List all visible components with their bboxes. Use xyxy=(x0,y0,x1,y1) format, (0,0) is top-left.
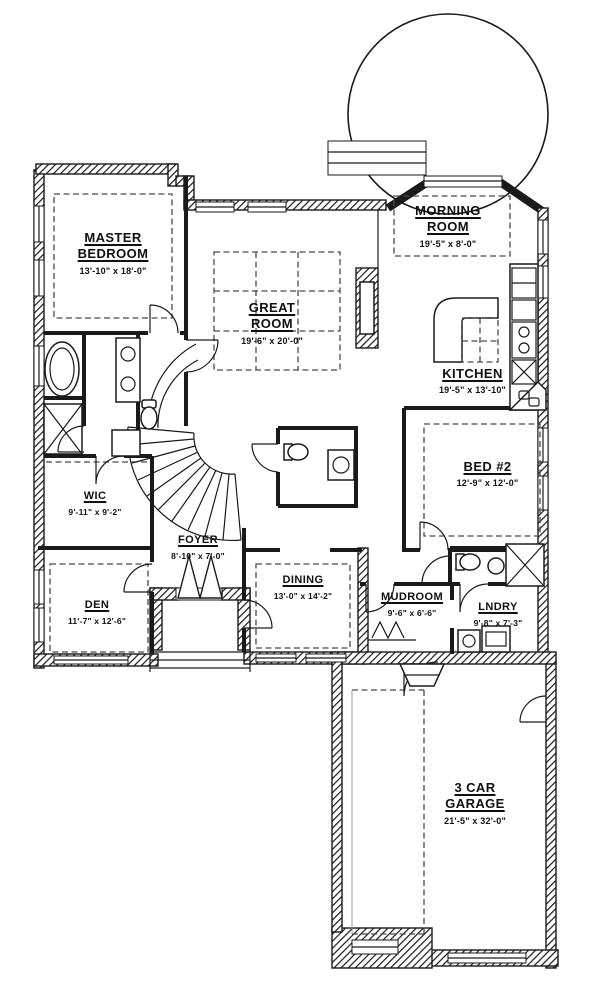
room-label-garage: 3 CAR GARAGE 21'-5" x 32'-0" xyxy=(417,780,533,826)
room-name: GARAGE xyxy=(417,796,533,812)
room-name: DEN xyxy=(45,599,149,613)
room-dimensions: 13'-0" x 14'-2" xyxy=(252,591,354,601)
mudroom-bench xyxy=(368,622,416,640)
room-label-den: DEN 11'-7" x 12'-6" xyxy=(45,599,149,626)
room-name: 3 CAR xyxy=(417,780,533,796)
room-name: WIC xyxy=(45,490,145,504)
room-name: LNDRY xyxy=(446,601,550,615)
room-label-great-room: GREAT ROOM 19'-6" x 20'-0" xyxy=(217,300,327,346)
entry-porch xyxy=(150,556,250,672)
floor-plan: MASTER BEDROOM 13'-10" x 18'-0" GREAT RO… xyxy=(0,0,600,1001)
porch-steps xyxy=(150,650,250,672)
room-dimensions: 21'-5" x 32'-0" xyxy=(417,816,533,826)
room-label-laundry: LNDRY 9'-8" x 7'-3" xyxy=(446,601,550,628)
room-name: BEDROOM xyxy=(48,246,178,262)
island-icon xyxy=(434,298,498,362)
bay-window-bands xyxy=(328,141,502,187)
room-name: ROOM xyxy=(390,219,506,235)
room-label-bed-2: BED #2 12'-9" x 12'-0" xyxy=(430,459,545,488)
room-name: MORNING xyxy=(390,203,506,219)
entry-door-swing xyxy=(200,556,222,598)
room-dimensions: 12'-9" x 12'-0" xyxy=(430,478,545,488)
room-label-foyer: FOYER 8'-10" x 7'-0" xyxy=(146,534,250,561)
room-label-kitchen: KITCHEN 19'-5" x 13'-10" xyxy=(415,366,530,395)
vanity-icon xyxy=(116,338,140,402)
room-dimensions: 19'-5" x 13'-10" xyxy=(415,385,530,395)
room-label-wic: WIC 9'-11" x 9'-2" xyxy=(45,490,145,517)
room-dimensions: 9'-8" x 7'-3" xyxy=(446,618,550,628)
room-name: ROOM xyxy=(217,316,327,332)
hall-closet xyxy=(112,430,140,456)
room-label-dining: DINING 13'-0" x 14'-2" xyxy=(252,574,354,601)
room-dimensions: 19'-6" x 20'-0" xyxy=(217,336,327,346)
room-name: MASTER xyxy=(48,230,178,246)
laundry-sink-icon xyxy=(458,630,480,652)
room-dimensions: 9'-11" x 9'-2" xyxy=(45,507,145,517)
room-dimensions: 8'-10" x 7'-0" xyxy=(146,551,250,561)
room-label-master-bedroom: MASTER BEDROOM 13'-10" x 18'-0" xyxy=(48,230,178,276)
room-label-morning-room: MORNING ROOM 19'-5" x 8'-0" xyxy=(390,203,506,249)
sink-icon xyxy=(488,558,504,574)
room-name: GREAT xyxy=(217,300,327,316)
room-name: KITCHEN xyxy=(415,366,530,382)
sink-icon xyxy=(328,450,354,480)
room-dimensions: 11'-7" x 12'-6" xyxy=(45,616,149,626)
laundry-fixtures xyxy=(458,626,510,652)
entry-door-swing xyxy=(178,556,200,598)
room-dimensions: 13'-10" x 18'-0" xyxy=(48,266,178,276)
hall-bath-fixtures xyxy=(284,444,354,480)
room-name: DINING xyxy=(252,574,354,588)
room-name: FOYER xyxy=(146,534,250,548)
room-dimensions: 19'-5" x 8'-0" xyxy=(390,239,506,249)
room-name: BED #2 xyxy=(430,459,545,475)
